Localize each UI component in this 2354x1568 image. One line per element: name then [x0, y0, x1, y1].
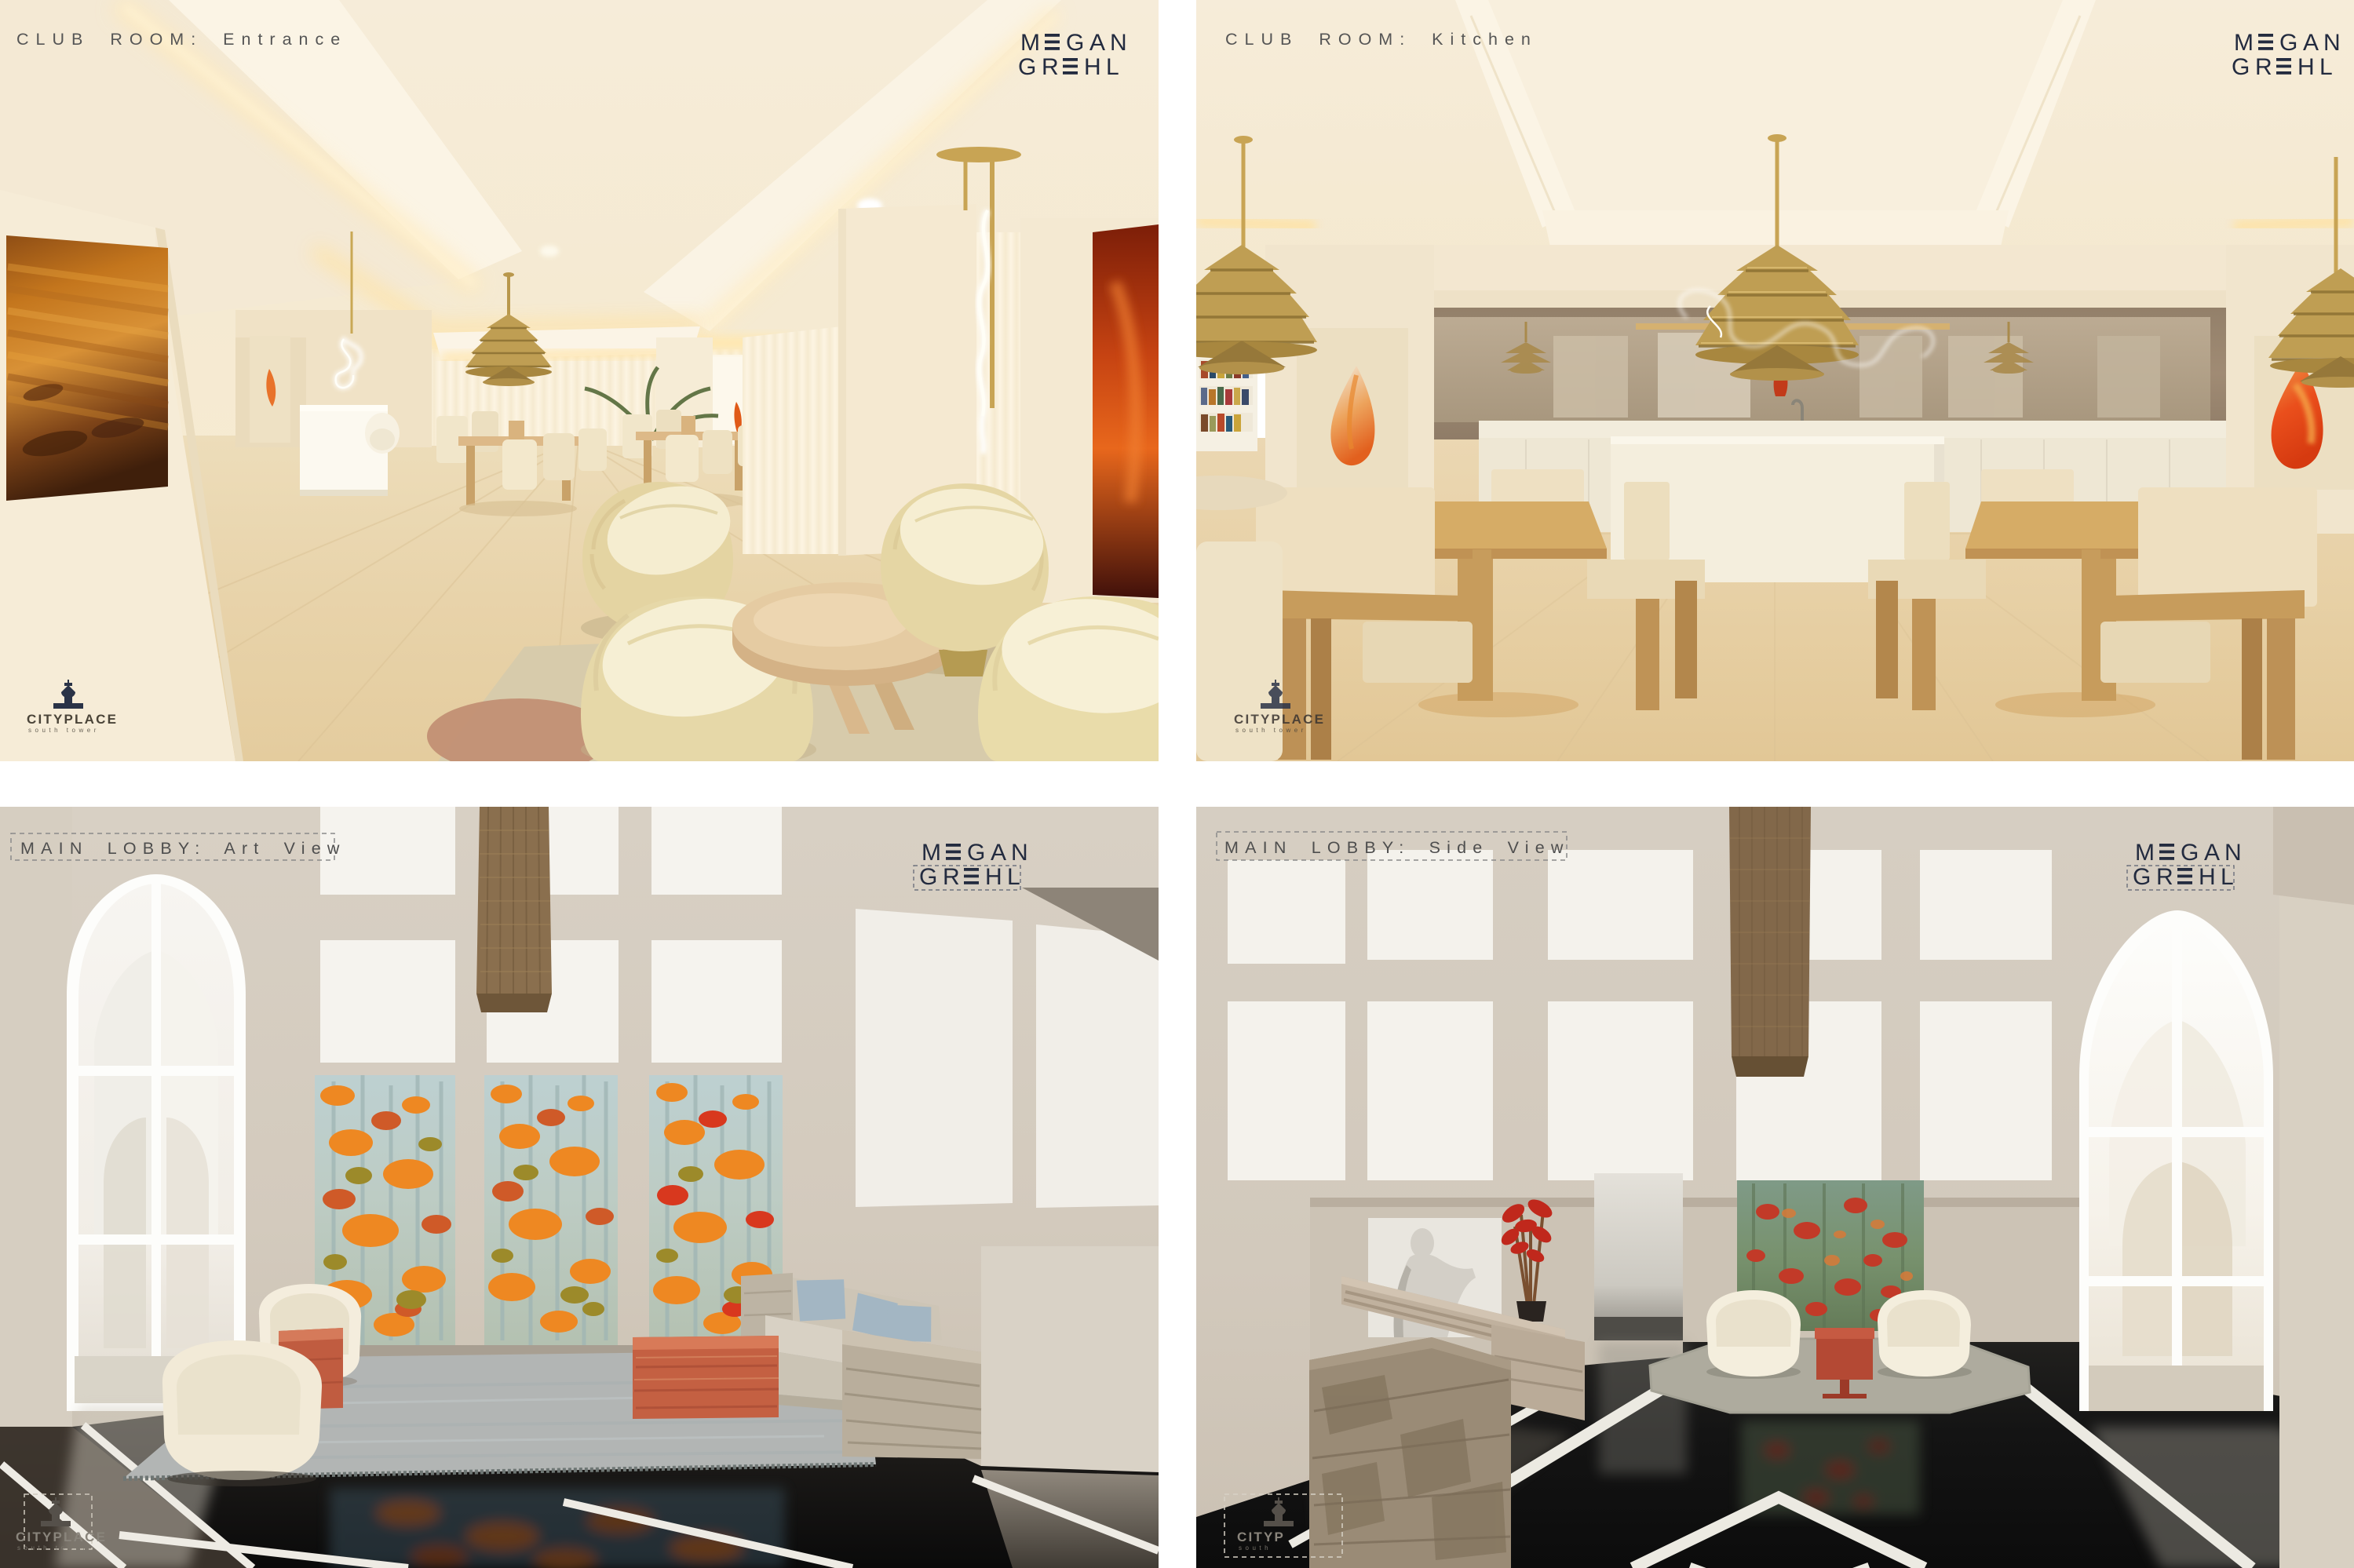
svg-text:H: H	[2297, 54, 2315, 80]
svg-text:CLUB ROOM: Entrance: CLUB ROOM: Entrance	[16, 30, 347, 49]
svg-text:G: G	[1066, 30, 1084, 56]
svg-text:south tower: south tower	[1235, 727, 1307, 734]
svg-text:CLUB ROOM: Kitchen: CLUB ROOM: Kitchen	[1225, 30, 1538, 49]
svg-text:CITYPLACE: CITYPLACE	[16, 1530, 107, 1544]
svg-text:A: A	[991, 840, 1006, 866]
svg-text:G: G	[2133, 864, 2151, 890]
svg-text:CITYPLACE: CITYPLACE	[1234, 712, 1325, 727]
svg-text:CITYPLACE: CITYPLACE	[27, 712, 118, 727]
svg-text:G: G	[2232, 54, 2250, 80]
svg-text:L: L	[2319, 54, 2333, 80]
svg-text:M: M	[2135, 840, 2155, 866]
svg-text:G: G	[2181, 840, 2199, 866]
svg-text:M: M	[922, 840, 941, 866]
svg-text:R: R	[2255, 54, 2272, 80]
svg-text:MAIN LOBBY: Side View: MAIN LOBBY: Side View	[1224, 838, 1570, 857]
svg-text:M: M	[2234, 30, 2254, 56]
svg-text:N: N	[1011, 840, 1028, 866]
svg-text:south tower: south tower	[17, 1544, 89, 1552]
svg-text:N: N	[1110, 30, 1127, 56]
svg-text:L: L	[1007, 864, 1020, 890]
svg-text:A: A	[2204, 840, 2220, 866]
svg-text:south tower: south tower	[28, 727, 100, 734]
svg-text:CITYP: CITYP	[1237, 1530, 1285, 1544]
svg-text:R: R	[2156, 864, 2173, 890]
svg-text:L: L	[2221, 864, 2234, 890]
svg-text:MAIN LOBBY: Art View: MAIN LOBBY: Art View	[20, 839, 346, 858]
svg-text:M: M	[1020, 30, 1040, 56]
svg-text:south: south	[1239, 1544, 1272, 1552]
svg-text:G: G	[1018, 54, 1036, 80]
svg-text:L: L	[1106, 54, 1119, 80]
svg-text:H: H	[985, 864, 1002, 890]
svg-text:H: H	[2199, 864, 2216, 890]
svg-text:G: G	[2279, 30, 2297, 56]
svg-text:G: G	[967, 840, 985, 866]
svg-text:N: N	[2323, 30, 2341, 56]
svg-text:A: A	[1089, 30, 1105, 56]
svg-text:R: R	[943, 864, 960, 890]
svg-text:R: R	[1042, 54, 1059, 80]
svg-text:H: H	[1084, 54, 1101, 80]
svg-text:G: G	[919, 864, 937, 890]
svg-text:N: N	[2224, 840, 2242, 866]
svg-text:A: A	[2303, 30, 2319, 56]
